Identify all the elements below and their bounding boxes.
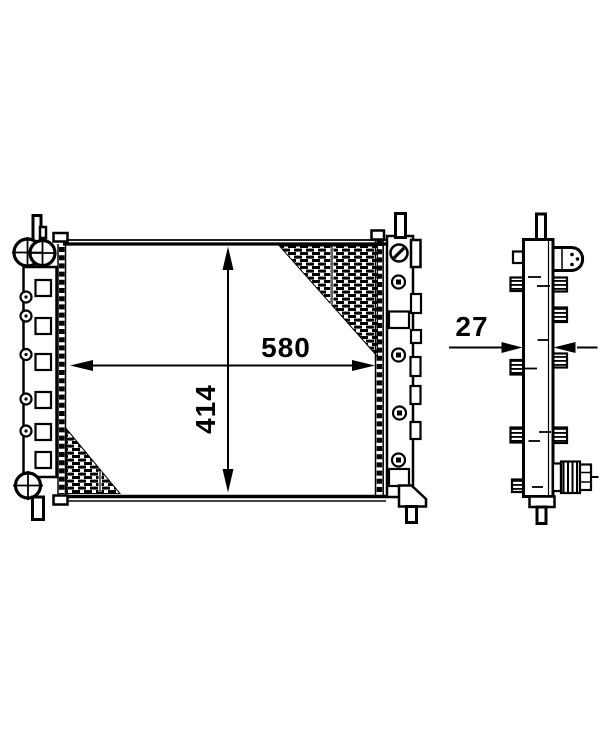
bottom-left-pipe [33, 497, 44, 520]
side-left-brackets [511, 252, 524, 493]
arrowhead-left-icon [70, 360, 93, 371]
arrowhead-down-icon [223, 469, 234, 493]
bottom-right-bracket [399, 486, 426, 523]
top-right-mounting-pin [396, 214, 406, 238]
radiator-front-view: 580 414 [12, 214, 426, 523]
filler-neck [553, 248, 583, 271]
arrowhead-up-icon [223, 247, 234, 271]
arrowhead-left-icon [554, 342, 576, 353]
technical-drawing-canvas: 580 414 [0, 0, 600, 744]
depth-dimension-label: 27 [455, 311, 488, 342]
top-left-mounting-pin [33, 216, 46, 242]
bottom-left-outlet [13, 471, 44, 520]
side-right-brackets [553, 278, 567, 444]
right-tank [387, 214, 426, 523]
left-tank [12, 216, 57, 520]
side-bottom-pin [537, 507, 546, 524]
side-top-pin [537, 214, 546, 240]
core-top-edge [63, 240, 386, 244]
arrowhead-right-icon [502, 342, 523, 353]
radiator-side-view: 27 [449, 214, 599, 524]
height-dimension: 414 [190, 247, 234, 493]
core-bottom-edge [63, 497, 386, 502]
bottom-right-mounting-pin [407, 507, 417, 523]
side-bottom-foot [530, 497, 555, 524]
core-hatch-bottom-left [67, 429, 121, 494]
width-dimension: 580 [70, 332, 375, 371]
arrowhead-right-icon [352, 360, 375, 371]
hose-connector [553, 462, 599, 494]
height-dimension-label: 414 [190, 384, 221, 434]
radiator-diagram: 580 414 [0, 0, 600, 744]
width-dimension-label: 580 [261, 332, 311, 363]
